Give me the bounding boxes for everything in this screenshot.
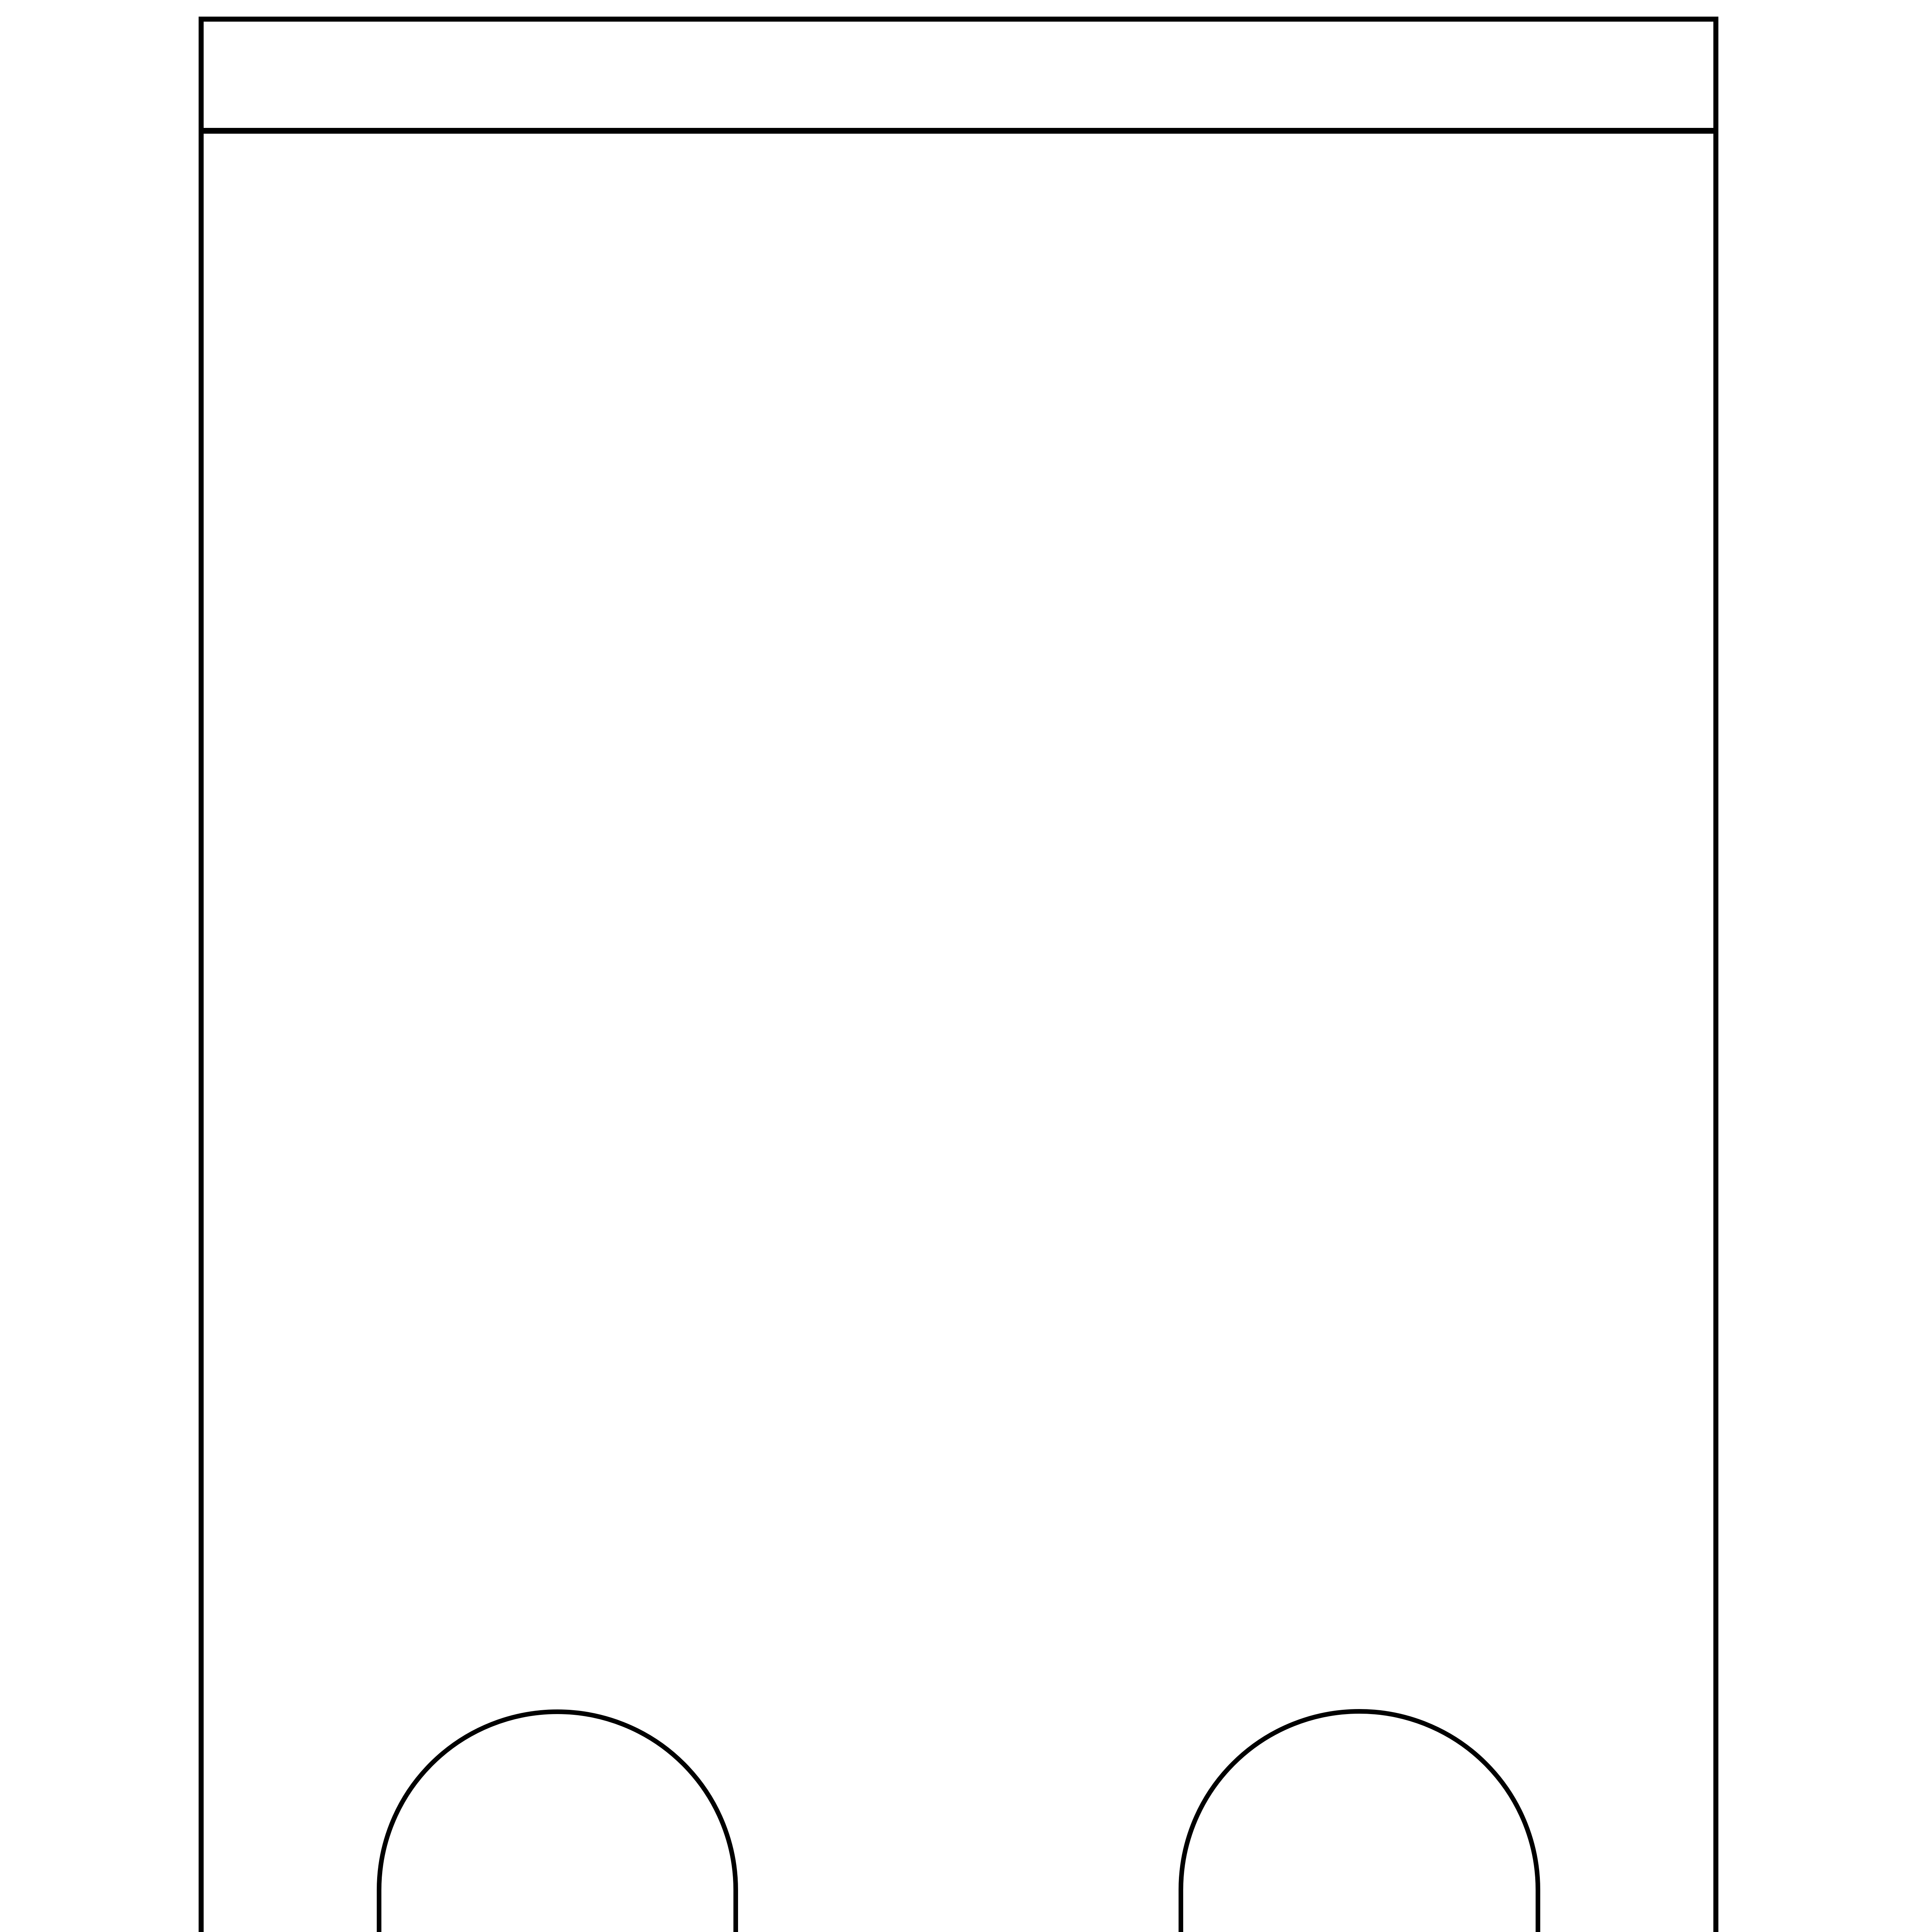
panel-outline bbox=[201, 19, 1716, 1932]
right-slot bbox=[1181, 1711, 1538, 1932]
drawing-page bbox=[0, 0, 1917, 1932]
drawing-canvas bbox=[0, 0, 1917, 1932]
left-slot bbox=[379, 1712, 736, 1932]
